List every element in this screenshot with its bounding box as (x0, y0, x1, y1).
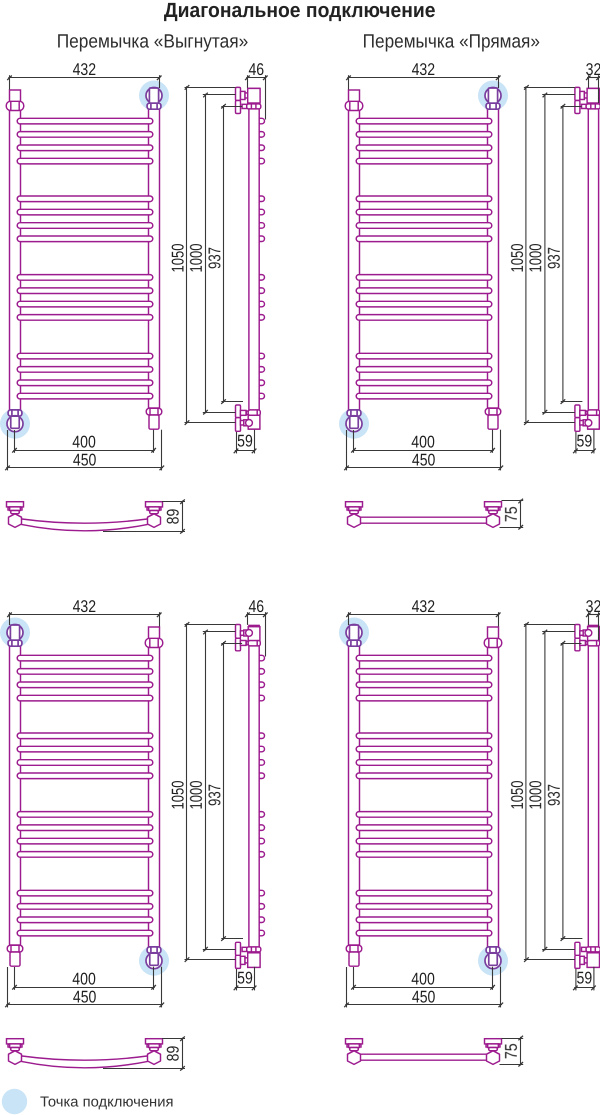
svg-text:400: 400 (72, 433, 96, 452)
svg-text:432: 432 (412, 60, 436, 79)
svg-text:450: 450 (412, 987, 436, 1006)
svg-text:Диагональное подключение: Диагональное подключение (164, 0, 436, 22)
svg-text:432: 432 (412, 597, 436, 616)
svg-text:32: 32 (586, 60, 600, 79)
svg-text:450: 450 (73, 987, 97, 1006)
svg-text:75: 75 (502, 506, 521, 522)
svg-text:46: 46 (248, 597, 264, 616)
svg-text:46: 46 (248, 60, 264, 79)
svg-text:Перемычка «Прямая»: Перемычка «Прямая» (363, 32, 540, 53)
svg-text:400: 400 (411, 970, 435, 989)
svg-text:75: 75 (502, 1043, 521, 1059)
svg-text:Точка подключения: Точка подключения (40, 1094, 174, 1110)
svg-text:450: 450 (73, 450, 97, 469)
svg-text:432: 432 (73, 60, 97, 79)
svg-text:89: 89 (164, 509, 183, 525)
svg-text:450: 450 (412, 450, 436, 469)
svg-text:32: 32 (586, 597, 600, 616)
svg-text:89: 89 (164, 1046, 183, 1062)
svg-text:432: 432 (73, 597, 97, 616)
svg-text:400: 400 (72, 970, 96, 989)
svg-text:Перемычка «Выгнутая»: Перемычка «Выгнутая» (57, 32, 249, 53)
svg-text:400: 400 (411, 433, 435, 452)
